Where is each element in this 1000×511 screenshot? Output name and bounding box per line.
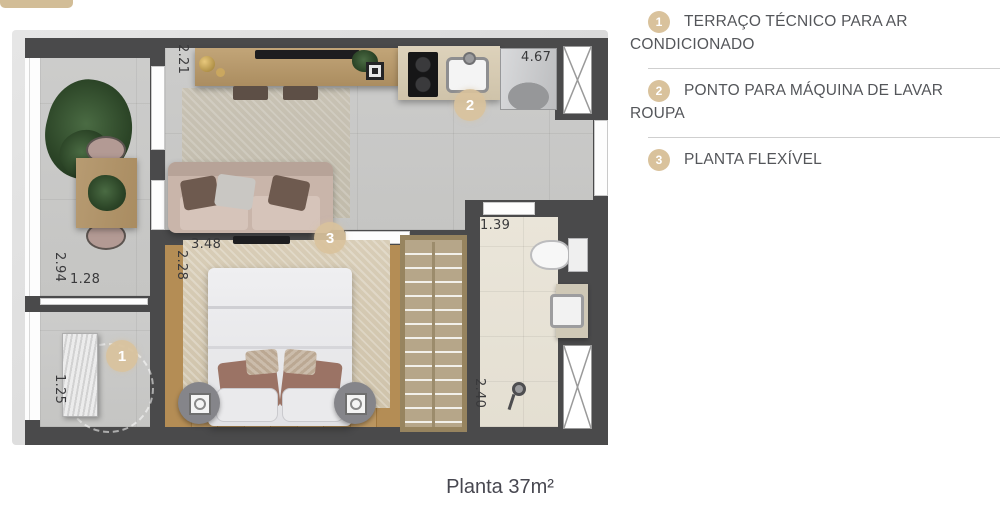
dim-kitchen-length: 4.67 <box>521 50 551 65</box>
legend: 1TERRAÇO TÉCNICO PARA AR CONDICIONADO 2P… <box>630 0 1000 171</box>
technical-terrace-lintel <box>40 298 148 305</box>
plan-marker-3-number: 3 <box>326 230 334 247</box>
shaft-bottom-icon <box>563 345 592 429</box>
dim-bedroom-depth: 2.28 <box>174 250 189 280</box>
dim-bathroom-length: 2.40 <box>472 378 487 408</box>
floor-pouf-left <box>233 86 268 100</box>
bed <box>208 268 352 426</box>
legend-badge-3: 3 <box>648 149 670 171</box>
dim-bathroom-width: 1.39 <box>480 218 510 233</box>
sofa-pillow-dark-left <box>180 175 221 211</box>
sink-faucet <box>463 52 476 65</box>
console-lamp <box>199 56 215 72</box>
table-centerpiece-plant <box>88 175 126 211</box>
entry-door-opening <box>594 120 608 196</box>
page: 1 2 3 2.21 2.94 1.28 1.25 3.48 2.28 4.67… <box>0 0 1000 511</box>
dim-technical-terrace-length: 1.25 <box>52 374 67 404</box>
ac-condenser-unit <box>62 333 98 417</box>
nightstand-lamp-right <box>345 393 367 415</box>
sofa-back <box>168 162 333 176</box>
bed-head-pillow-left <box>216 388 278 422</box>
bed-pillow-pattern-left <box>245 349 279 376</box>
plan-marker-3: 3 <box>314 222 346 254</box>
nightstand-lamp-left <box>189 393 211 415</box>
plan-marker-1-number: 1 <box>118 348 126 365</box>
console-decor-knob <box>216 68 225 77</box>
tv-bedroom <box>233 236 290 244</box>
tv-living <box>255 50 360 59</box>
technical-terrace-window-band <box>25 312 40 420</box>
legend-divider-1 <box>648 68 1000 69</box>
legend-divider-2 <box>648 137 1000 138</box>
terrace-door-opening <box>151 66 165 150</box>
plan-marker-2: 2 <box>454 89 486 121</box>
legend-badge-1: 1 <box>648 11 670 33</box>
shaft-top-icon <box>563 46 592 114</box>
legend-item-terraco-tecnico: 1TERRAÇO TÉCNICO PARA AR CONDICIONADO <box>630 10 1000 56</box>
closet-hangers <box>405 242 462 427</box>
dim-bedroom-width: 3.48 <box>191 237 221 252</box>
bed-duvet-fold <box>208 306 352 309</box>
cooktop <box>408 52 438 97</box>
dim-terrace-length: 2.94 <box>52 252 67 282</box>
legend-item-maquina-lavar: 2PONTO PARA MÁQUINA DE LAVAR ROUPA <box>630 79 1000 125</box>
sofa <box>168 162 333 233</box>
terrace-window-band <box>25 58 40 296</box>
legend-badge-2: 2 <box>648 80 670 102</box>
legend-label-2: PONTO PARA MÁQUINA DE LAVAR ROUPA <box>630 82 943 122</box>
toilet-tank <box>568 238 588 272</box>
legend-label-1: TERRAÇO TÉCNICO PARA AR CONDICIONADO <box>630 13 908 53</box>
terrace-window-opening <box>151 180 165 230</box>
bed-pillow-pattern-right <box>283 349 317 376</box>
bed-duvet-fold2 <box>208 346 352 349</box>
bathroom-sink <box>550 294 584 328</box>
dim-living-width: 2.21 <box>175 44 190 74</box>
wardrobe-closet <box>400 235 467 432</box>
legend-item-planta-flexivel: 3PLANTA FLEXÍVEL <box>630 148 1000 171</box>
legend-label-3: PLANTA FLEXÍVEL <box>684 151 822 168</box>
sofa-pillow-light <box>214 174 256 211</box>
floor-pouf-right <box>283 86 318 100</box>
plan-caption: Planta 37m² <box>380 476 620 499</box>
toilet-bowl <box>530 240 570 270</box>
console-frame-decor <box>366 62 384 80</box>
plan-marker-2-number: 2 <box>466 97 474 114</box>
dim-terrace-width: 1.28 <box>70 272 100 287</box>
plan-marker-1: 1 <box>106 340 138 372</box>
bathroom-door-opening <box>483 202 535 215</box>
